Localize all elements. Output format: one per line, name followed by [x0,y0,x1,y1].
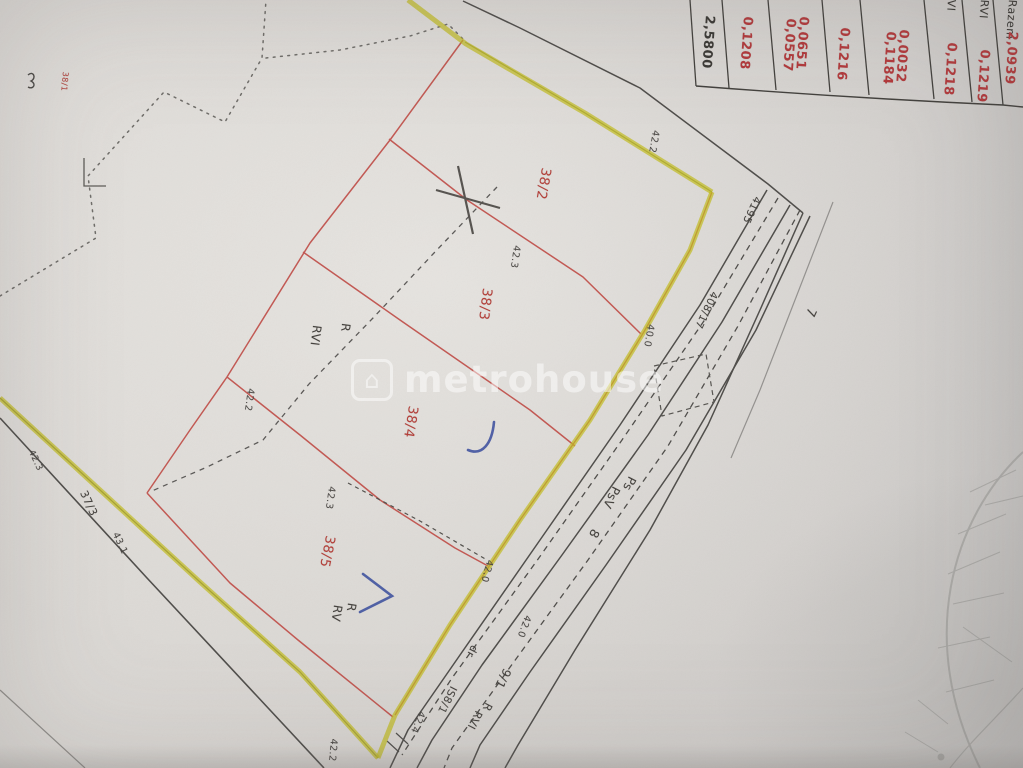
watermark-text: metrohouse [404,358,664,401]
meas-42-2-b: 42.2 [242,388,255,412]
meas-42-3-b: 42.3 [323,486,336,510]
meas-42-2-c: 42.2 [326,738,338,762]
table-value-3-0: 0,1216 [833,27,851,81]
landuse-rvi-38-3: RVI [308,324,323,346]
table-header-5: VI [944,0,957,12]
plot-number-38-3: 38/3 [476,287,494,321]
landuse-r-38-5: R [344,602,358,613]
table-value-6-0: 0,1219 [973,49,991,103]
landuse-r-38-3: R [338,322,352,332]
landuse-rv-38-5: RV [329,604,344,623]
table-value-2-1: 0,0557 [779,18,797,72]
house-logo-icon: ⌂ [351,359,393,401]
table-value-4-1: 0,1184 [879,31,897,85]
scanned-cadastral-map: ⌂ metrohouse 38/138/238/338/438/5RRVIRRV… [0,0,1023,768]
meas-42-3-a: 42.3 [508,245,521,269]
table-header-6: RVI [977,0,990,19]
watermark: ⌂ metrohouse [351,358,664,401]
table-value-1-0: 0,1208 [736,16,754,70]
plot-number-38-1: 38/1 [59,71,69,92]
table-value-5-0: 0,1218 [940,42,958,96]
table-value-7-0: 2,0939 [1001,31,1019,85]
table-value-0-0: 2,5800 [698,15,716,69]
